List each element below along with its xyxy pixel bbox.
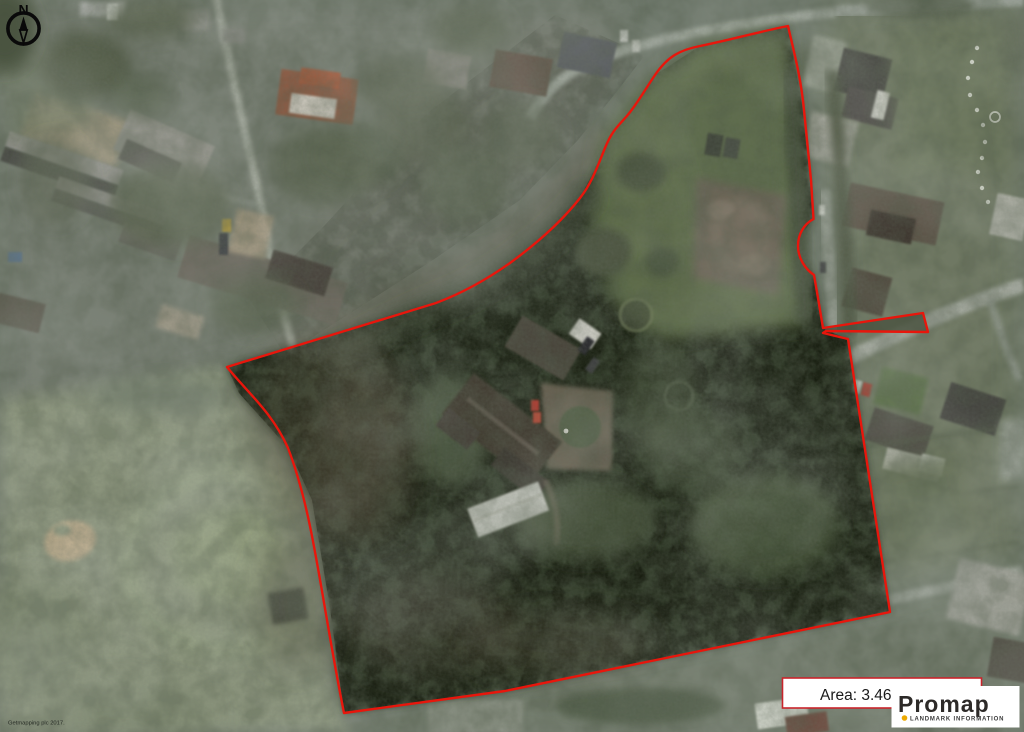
- svg-text:Getmapping plc 2017.: Getmapping plc 2017.: [8, 721, 65, 727]
- svg-text:Area: 3.46: Area: 3.46: [820, 687, 892, 704]
- svg-text:N: N: [18, 2, 28, 18]
- svg-text:LANDMARK INFORMATION: LANDMARK INFORMATION: [910, 717, 1004, 723]
- svg-text:Promap: Promap: [898, 691, 990, 717]
